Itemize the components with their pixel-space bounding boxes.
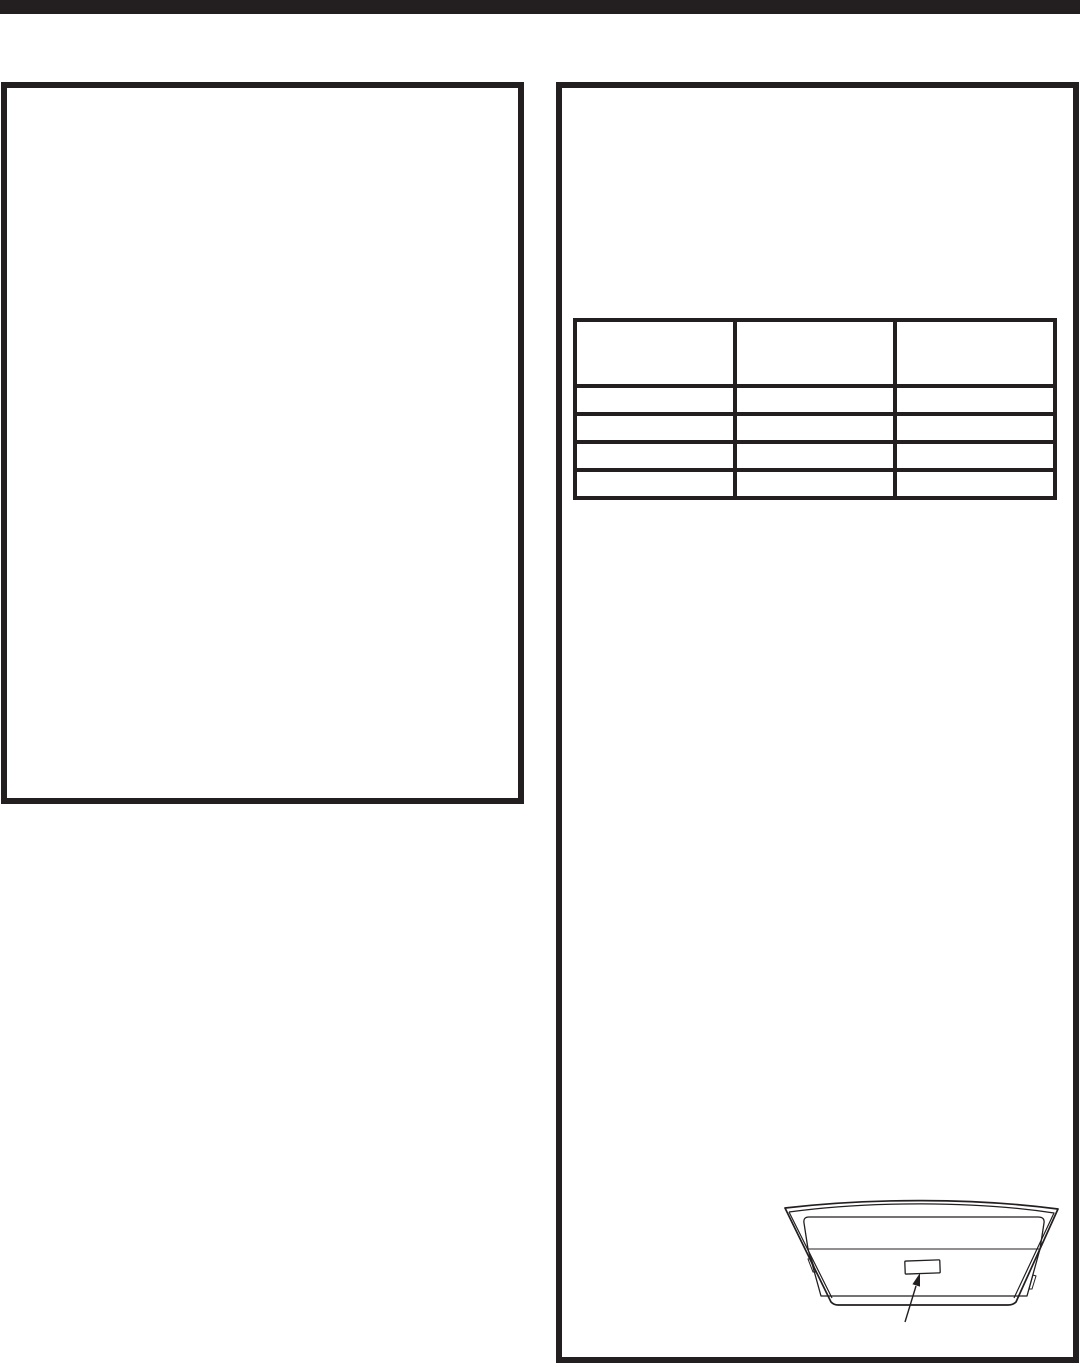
appliance-outer-outline bbox=[785, 1201, 1058, 1305]
table-header-cell bbox=[575, 320, 735, 386]
right-content-box bbox=[556, 82, 1079, 1363]
table-header-cell bbox=[895, 320, 1055, 386]
top-rule-bar bbox=[0, 0, 1080, 14]
table-row bbox=[575, 442, 1055, 470]
right-side-tab bbox=[1029, 1275, 1036, 1289]
table-row bbox=[575, 414, 1055, 442]
table-cell bbox=[735, 386, 895, 414]
appliance-inner-outline bbox=[789, 1204, 1054, 1298]
appliance-underside-illustration bbox=[775, 1193, 1070, 1333]
appliance-underside-illustration-svg bbox=[775, 1193, 1070, 1333]
table-cell bbox=[575, 386, 735, 414]
table-cell bbox=[895, 414, 1055, 442]
table-cell bbox=[895, 386, 1055, 414]
table-header-cell bbox=[735, 320, 895, 386]
table-row bbox=[575, 386, 1055, 414]
document-page bbox=[0, 0, 1080, 1367]
pointer-arrow bbox=[905, 1273, 920, 1322]
table-cell bbox=[895, 442, 1055, 470]
table-cell bbox=[575, 414, 735, 442]
table-cell bbox=[575, 442, 735, 470]
table-cell bbox=[735, 442, 895, 470]
spec-table bbox=[573, 318, 1057, 500]
appliance-panel-outline bbox=[804, 1217, 1044, 1296]
table-cell bbox=[895, 470, 1055, 498]
rating-label-rect bbox=[905, 1260, 940, 1274]
left-note-box bbox=[1, 82, 524, 804]
table-cell bbox=[735, 470, 895, 498]
table-header-row bbox=[575, 320, 1055, 386]
table-row bbox=[575, 470, 1055, 498]
table-cell bbox=[735, 414, 895, 442]
table-cell bbox=[575, 470, 735, 498]
